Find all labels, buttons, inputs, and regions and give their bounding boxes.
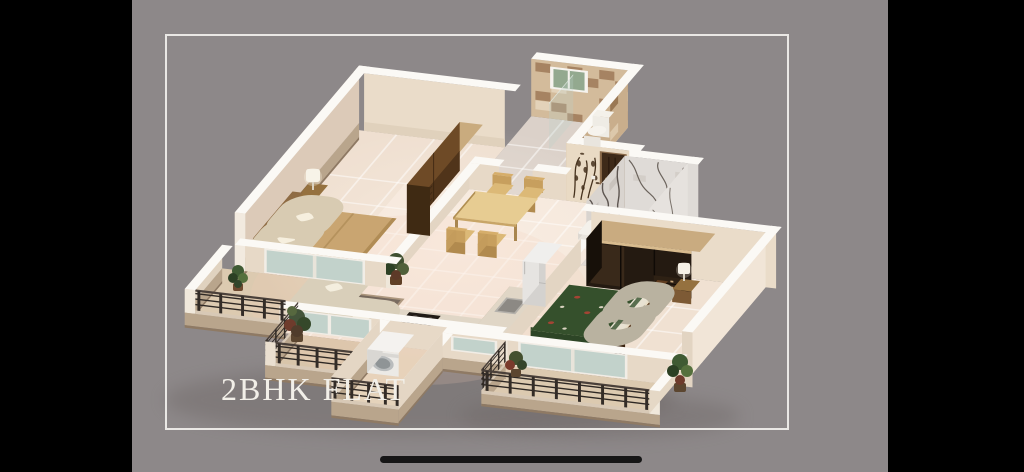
phone-screenshot: 2BHK FLAT: [0, 0, 1024, 472]
switch-plate: [591, 176, 595, 180]
page-title: 2BHK FLAT: [221, 371, 407, 408]
home-indicator[interactable]: [380, 456, 642, 463]
floor-plan-illustration: [0, 0, 1024, 472]
